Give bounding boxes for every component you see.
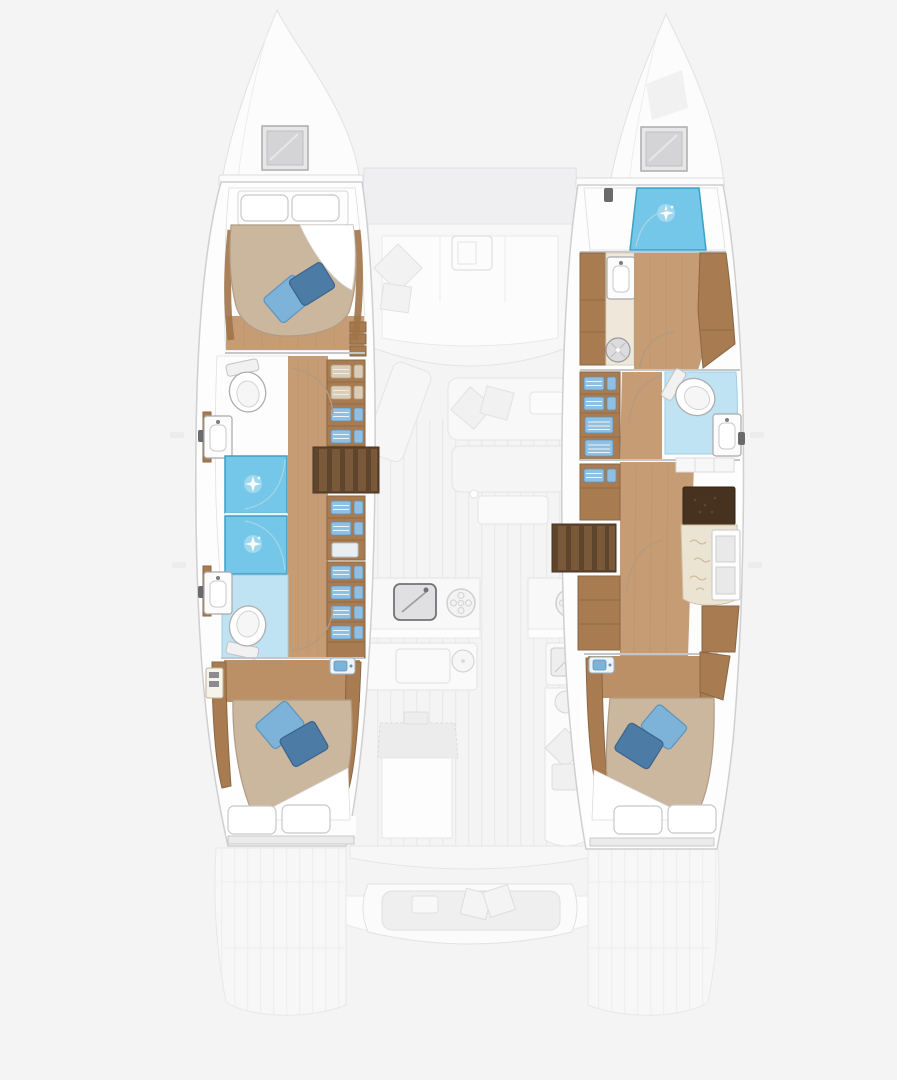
stern-platform-starboard	[588, 848, 719, 1015]
folded-clothes	[585, 417, 613, 433]
vanity-washbasin	[589, 657, 614, 673]
port-wardrobe-forward	[327, 360, 365, 446]
galley-sink	[394, 584, 436, 620]
folded-clothes	[331, 606, 363, 619]
foredeck-panel	[362, 168, 578, 224]
port-shower-compartments	[225, 456, 287, 574]
port-stairs	[313, 447, 379, 493]
bow-hatch-starboard	[641, 127, 687, 171]
white-pillow	[241, 195, 288, 221]
saloon-seat	[452, 446, 572, 492]
nav-desk	[683, 487, 735, 525]
folded-clothes	[331, 522, 363, 535]
saloon-pillow	[530, 392, 564, 414]
galley-island-center	[378, 712, 458, 838]
corridor-floor	[620, 372, 662, 460]
folded-clothes	[331, 586, 363, 599]
saloon-table	[478, 496, 548, 524]
folded-clothes	[331, 501, 363, 514]
bow-hatch-port	[262, 126, 308, 170]
vanity-washbasin	[330, 658, 355, 674]
bench-pillow	[412, 896, 438, 913]
folded-clothes	[584, 469, 616, 482]
starboard-desk-section	[552, 458, 740, 658]
foredeck-lounge	[362, 168, 578, 366]
cubby-unit	[712, 530, 740, 600]
foredeck-table	[452, 236, 492, 270]
folded-clothes	[585, 440, 613, 456]
port-wardrobe-mid	[327, 496, 365, 560]
folded-clothes	[331, 408, 363, 421]
washbasin	[204, 572, 232, 614]
port-forward-cabin	[225, 188, 366, 356]
white-pillow	[282, 805, 330, 833]
berth-footboard	[228, 836, 354, 844]
cooktop-burner	[447, 589, 475, 617]
port-mid-section	[198, 356, 379, 660]
folded-clothes	[331, 386, 363, 399]
wardrobe	[580, 464, 620, 520]
galley-island-left	[365, 643, 477, 690]
starboard-stairs	[552, 524, 616, 572]
white-pillow	[614, 806, 662, 834]
locker	[702, 606, 739, 652]
folded-clothes	[584, 377, 616, 390]
linen-item	[332, 543, 358, 557]
white-pillow	[292, 195, 339, 221]
foredeck-cushion	[380, 283, 411, 313]
starboard-bow-shower-room	[580, 188, 726, 252]
folded-clothes	[584, 397, 616, 410]
stern-platform-port	[215, 848, 346, 1015]
port-aft-cabin	[206, 658, 363, 844]
wardrobe	[580, 372, 620, 460]
round-basin	[606, 338, 630, 362]
port-hull	[196, 182, 379, 846]
locker	[206, 668, 223, 698]
starboard-aft-cabin	[582, 652, 730, 846]
folded-clothes	[331, 566, 363, 579]
white-pillow	[668, 805, 716, 833]
aft-cockpit	[330, 846, 608, 944]
saloon-detail	[470, 490, 478, 498]
washbasin	[607, 257, 635, 299]
white-pillow	[228, 806, 276, 834]
starboard-forward-section	[580, 253, 740, 370]
cubby-shelf	[676, 458, 734, 472]
washbasin	[713, 414, 741, 456]
folded-clothes	[331, 365, 363, 378]
cockpit-bench	[363, 884, 577, 944]
starboard-hull	[552, 185, 745, 849]
locker-cabinet	[578, 576, 620, 650]
faucet	[738, 432, 745, 445]
wardrobe	[580, 253, 606, 365]
folded-clothes	[331, 430, 363, 443]
faucet	[604, 188, 613, 202]
folded-clothes	[331, 626, 363, 639]
washbasin	[204, 416, 232, 458]
catamaran-floorplan	[0, 0, 897, 1080]
berth-footboard	[590, 838, 714, 846]
